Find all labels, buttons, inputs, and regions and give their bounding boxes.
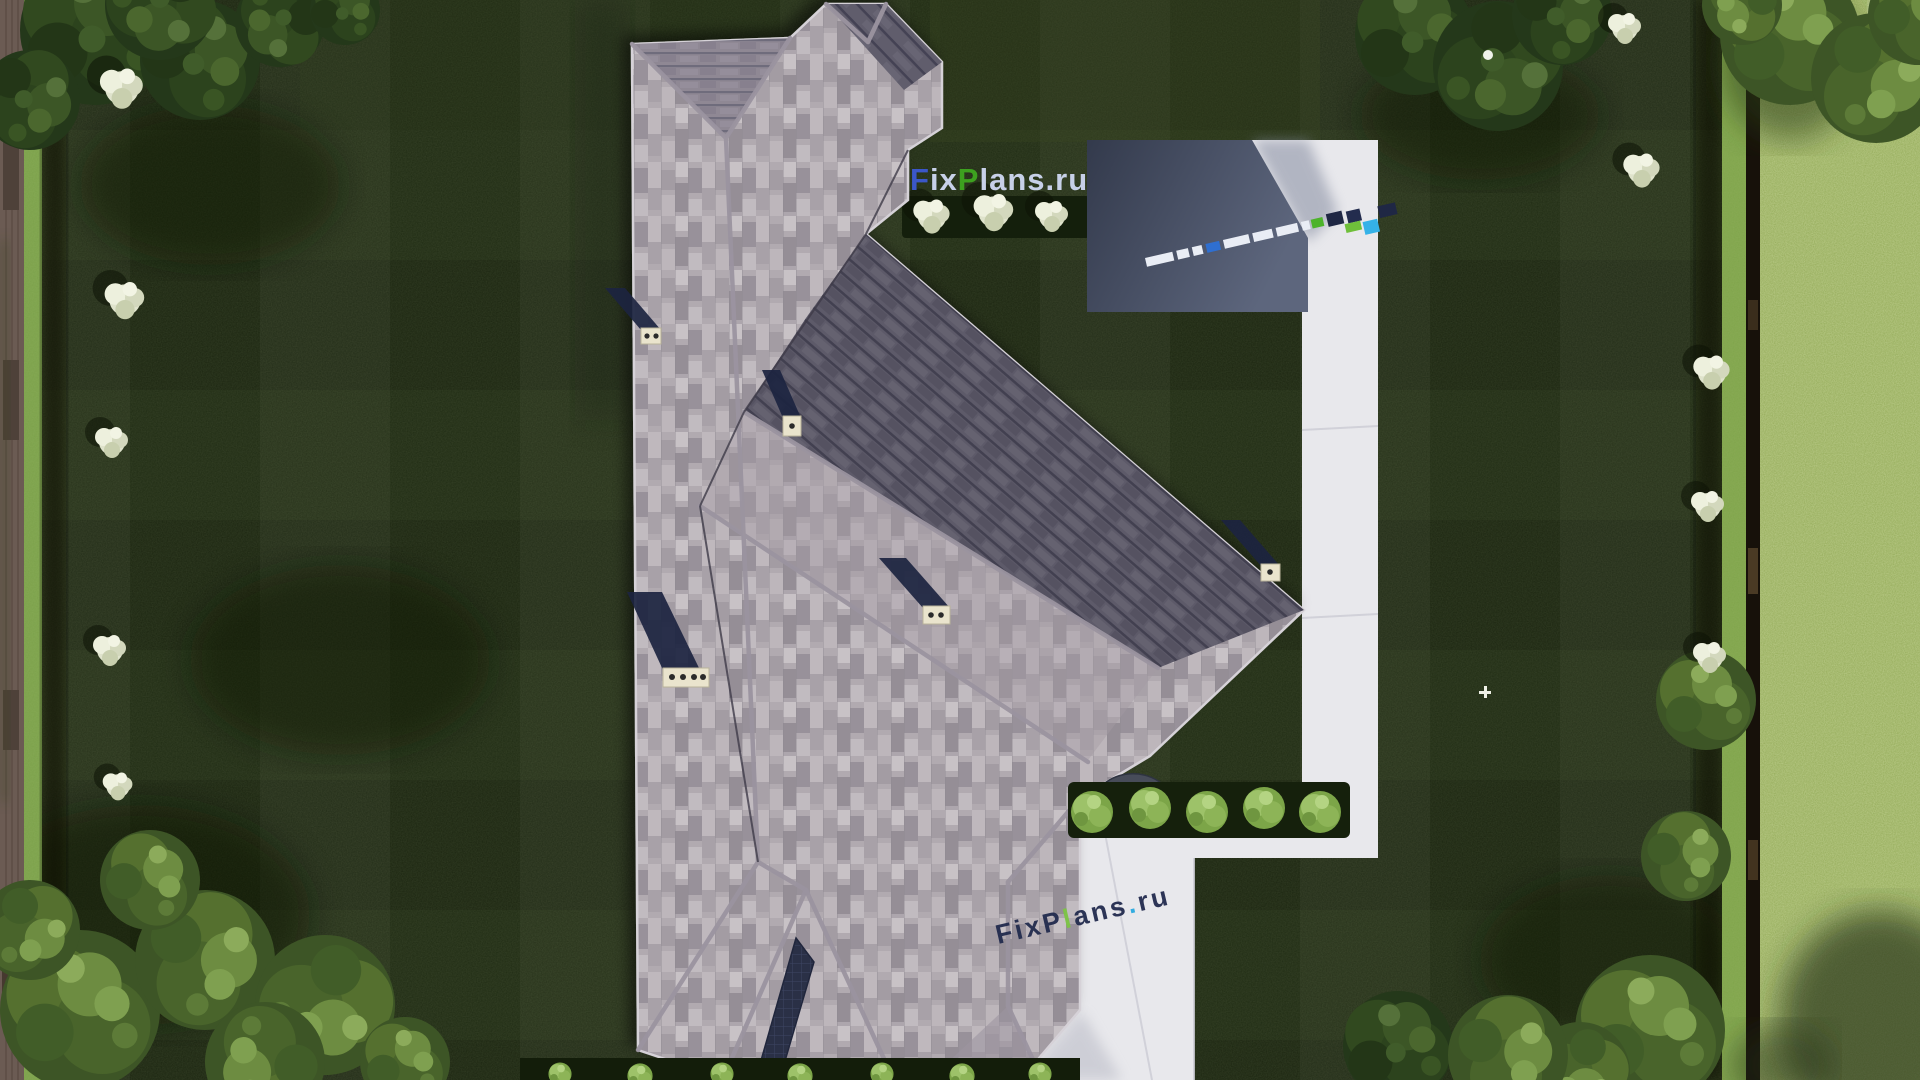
aerial-render-scene: FixPlans.ru FixPlans.ru — [0, 0, 1920, 1080]
chimney-cap — [923, 606, 950, 624]
green-bush — [1129, 787, 1171, 829]
flue — [669, 674, 675, 680]
right-hedge-grain — [1722, 0, 1748, 1080]
flue — [928, 612, 934, 618]
right-hedge-shadow — [1696, 0, 1722, 1080]
green-bush — [1243, 787, 1285, 829]
right-fence-plank — [1748, 300, 1758, 330]
watermark-letters-rest: lans.ru — [979, 162, 1088, 197]
path-grass-edge-shadow — [0, 240, 10, 802]
flue — [700, 674, 706, 680]
left-fence-panel — [3, 140, 19, 210]
white-bird — [1483, 50, 1493, 60]
lawn-shade-patch — [80, 105, 340, 265]
right-planting-bed — [1068, 774, 1350, 838]
right-fence-plank — [1748, 840, 1758, 880]
flue — [680, 674, 686, 680]
right-boundary — [1696, 0, 1920, 1080]
flue — [1267, 569, 1273, 575]
green-bush — [1186, 791, 1228, 833]
flue — [653, 333, 658, 338]
green-bush — [1071, 791, 1113, 833]
lawn-sunlit-patch — [930, 0, 1320, 142]
bottom-planting-bed — [520, 1058, 1080, 1080]
green-bush — [1299, 791, 1341, 833]
flue — [938, 612, 944, 618]
watermark-letter-f: F — [910, 162, 930, 197]
right-fence — [1746, 0, 1760, 1080]
right-fence-plank — [1748, 548, 1758, 594]
lawn-shade-patch — [190, 565, 490, 755]
watermark-top-text: FixPlans.ru — [910, 162, 1088, 197]
flue — [691, 674, 697, 680]
flue — [644, 333, 649, 338]
flue — [789, 423, 795, 429]
scene-canvas: FixPlans.ru FixPlans.ru — [0, 0, 1920, 1080]
watermark-letters-ix: ix — [930, 162, 958, 197]
lawn-shade-band — [575, 0, 630, 420]
watermark-letter-p: P — [958, 162, 980, 197]
